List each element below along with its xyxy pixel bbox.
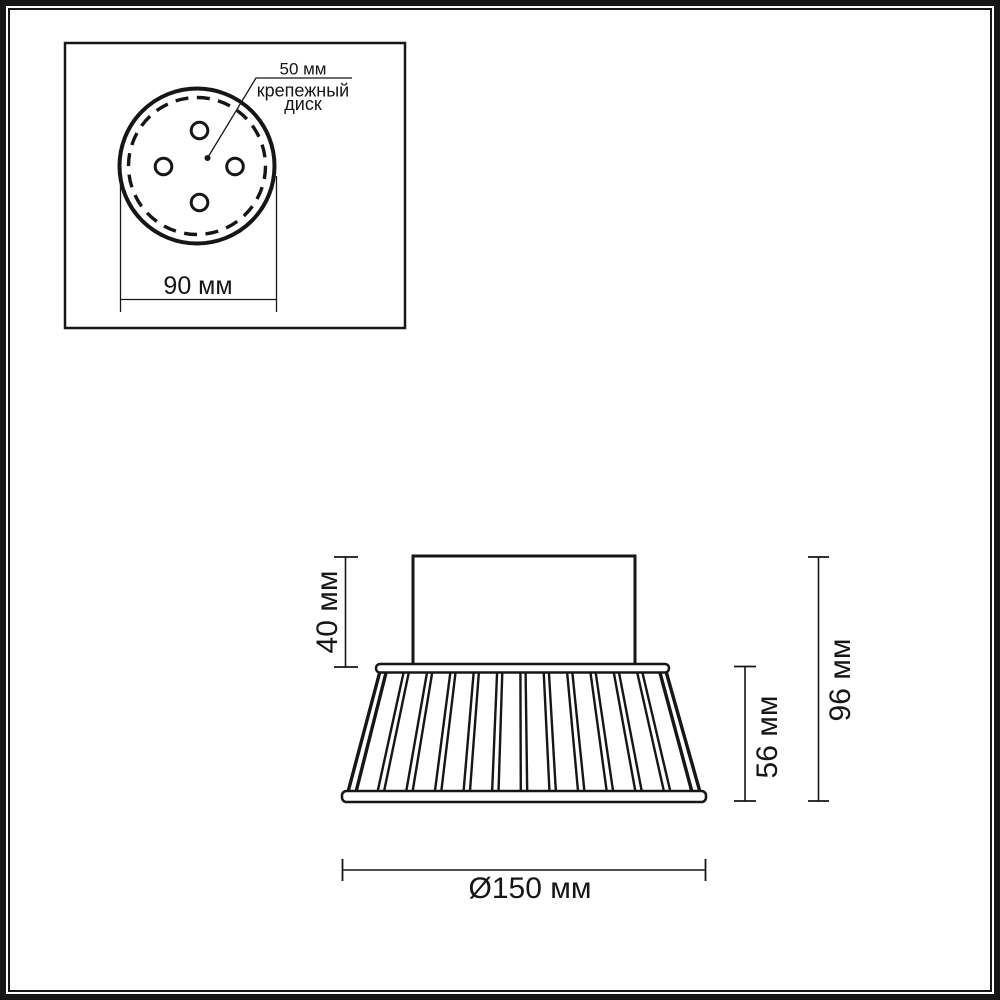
shade-pleats bbox=[348, 672, 700, 792]
shade-pleat-line bbox=[567, 672, 578, 792]
technical-drawing: 50 мм крепежный диск 90 мм 40 мм 56 мм bbox=[0, 0, 1000, 1000]
shade-pleat-line bbox=[572, 672, 584, 792]
dim-96-label: 96 мм bbox=[824, 639, 857, 722]
shade-pleat-line bbox=[384, 672, 409, 792]
shade-pleat-line bbox=[660, 672, 692, 792]
dim-150-label: Ø150 мм bbox=[469, 872, 592, 905]
shade-top-band bbox=[376, 664, 669, 673]
mounting-disc-label-line2: диск bbox=[284, 94, 322, 114]
shade-pleat-line bbox=[637, 672, 664, 792]
shade-pleat-line bbox=[526, 672, 528, 792]
lamp-side-view: 40 мм 56 мм 96 мм Ø150 мм bbox=[311, 556, 857, 905]
shade-pleat-line bbox=[348, 672, 380, 792]
shade-pleat-line bbox=[499, 672, 503, 792]
dim-56-label: 56 мм bbox=[751, 696, 784, 779]
shade-pleat-line bbox=[666, 672, 700, 792]
dim-40: 40 мм bbox=[311, 557, 358, 667]
shade-pleat-line bbox=[544, 672, 550, 792]
callout-value: 50 мм bbox=[279, 60, 326, 79]
shade-bottom-rim bbox=[342, 791, 706, 802]
dim-96: 96 мм bbox=[808, 557, 857, 801]
dim-90-label: 90 мм bbox=[163, 272, 232, 300]
dim-150: Ø150 мм bbox=[343, 859, 706, 905]
mounting-disc-inset: 50 мм крепежный диск 90 мм bbox=[65, 43, 405, 328]
shade-pleat-line bbox=[492, 672, 497, 792]
shade-pleat-line bbox=[549, 672, 556, 792]
mounting-box bbox=[413, 556, 635, 668]
shade-pleat-line bbox=[619, 672, 642, 792]
dim-40-label: 40 мм bbox=[311, 571, 344, 654]
inset-box bbox=[65, 43, 405, 328]
shade-pleat-line bbox=[614, 672, 636, 792]
dim-56: 56 мм bbox=[734, 667, 784, 802]
